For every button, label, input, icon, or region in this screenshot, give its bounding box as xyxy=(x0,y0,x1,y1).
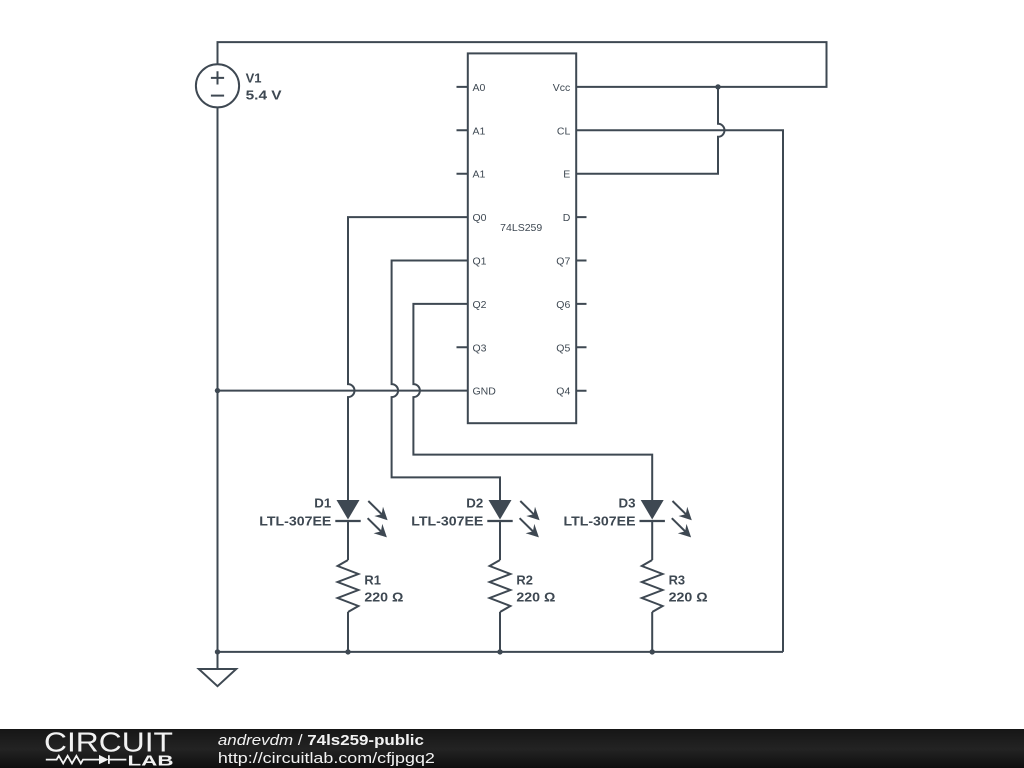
svg-text:Vcc: Vcc xyxy=(553,82,571,94)
svg-text:220 Ω: 220 Ω xyxy=(669,589,708,604)
svg-text:Q1: Q1 xyxy=(473,256,487,268)
svg-text:R2: R2 xyxy=(516,573,533,588)
svg-text:Q4: Q4 xyxy=(556,386,570,398)
svg-text:LTL-307EE: LTL-307EE xyxy=(411,513,483,528)
svg-text:D3: D3 xyxy=(619,496,636,511)
svg-text:74LS259: 74LS259 xyxy=(500,222,542,234)
svg-text:GND: GND xyxy=(473,386,497,398)
svg-text:LTL-307EE: LTL-307EE xyxy=(564,513,636,528)
svg-text:220 Ω: 220 Ω xyxy=(516,589,555,604)
svg-text:R1: R1 xyxy=(364,573,381,588)
svg-text:E: E xyxy=(563,169,570,181)
svg-text:5.4 V: 5.4 V xyxy=(246,88,282,103)
svg-text:220 Ω: 220 Ω xyxy=(364,589,403,604)
svg-text:A1: A1 xyxy=(473,125,486,137)
svg-text:D1: D1 xyxy=(314,496,331,511)
svg-text:D2: D2 xyxy=(466,496,483,511)
svg-text:Q2: Q2 xyxy=(473,299,487,311)
svg-text:Q6: Q6 xyxy=(556,299,570,311)
svg-text:A1: A1 xyxy=(473,169,486,181)
svg-text:CL: CL xyxy=(557,125,571,137)
svg-text:R3: R3 xyxy=(669,573,686,588)
svg-text:Q5: Q5 xyxy=(556,342,570,354)
svg-text:V1: V1 xyxy=(246,71,262,86)
svg-text:A0: A0 xyxy=(473,82,486,94)
svg-text:Q0: Q0 xyxy=(473,212,487,224)
svg-text:D: D xyxy=(563,212,571,224)
svg-text:Q3: Q3 xyxy=(473,342,487,354)
svg-text:Q7: Q7 xyxy=(556,256,570,268)
svg-text:LTL-307EE: LTL-307EE xyxy=(259,513,331,528)
